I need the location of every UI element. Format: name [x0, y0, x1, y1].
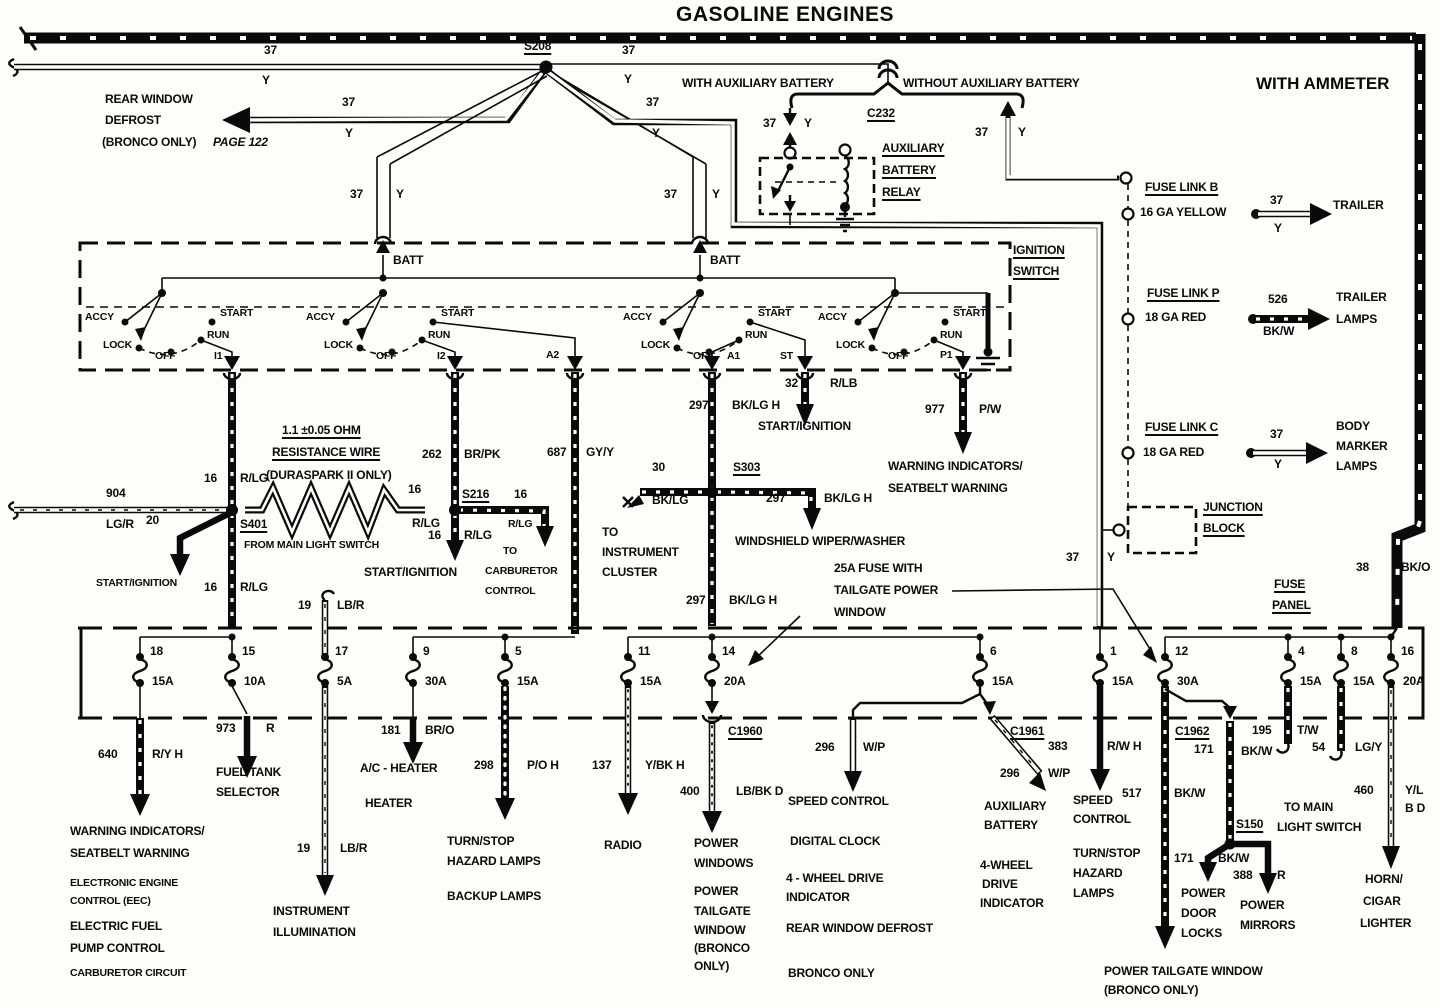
- backup-lamps: BACKUP LAMPS: [447, 890, 541, 903]
- fuse-panel: [78, 628, 1424, 718]
- fuse-panel-2: PANEL: [1272, 599, 1311, 612]
- fuse1-amp: 15A: [1112, 675, 1133, 688]
- to-cluster-3: CLUSTER: [602, 566, 657, 579]
- w1-lock: LOCK: [103, 340, 132, 352]
- w1-start: START: [220, 308, 253, 320]
- resistance-1: 1.1 ±0.05 OHM: [282, 424, 361, 437]
- aux-battery-2: BATTERY: [984, 819, 1038, 832]
- callout-25a-3: WINDOW: [834, 606, 885, 619]
- wire977: 977: [925, 403, 944, 416]
- wireLBR-top: LB/R: [337, 599, 364, 612]
- eec-2: CONTROL (EEC): [70, 896, 151, 908]
- bronco-only-b: BRONCO ONLY: [788, 967, 875, 980]
- term-i1: I1: [214, 351, 222, 363]
- fuse11-amp: 15A: [640, 675, 661, 688]
- fwd-indicator-b2: DRIVE: [982, 878, 1018, 891]
- wire526-flp: 526: [1268, 293, 1287, 306]
- wireRYH: R/Y H: [152, 748, 183, 761]
- wire297-a1: 297: [689, 399, 708, 412]
- w4-accy: ACCY: [818, 312, 847, 324]
- fuse-link-p-gauge: 18 GA RED: [1145, 311, 1206, 324]
- fuse16-num: 16: [1401, 645, 1414, 658]
- w4-off: OFF: [888, 351, 908, 363]
- fuse9-amp: 30A: [425, 675, 446, 688]
- fuse18-amp: 15A: [152, 675, 173, 688]
- fuse-panel-1: FUSE: [1274, 578, 1305, 591]
- wire19-top: 19: [298, 599, 311, 612]
- wireLGY: LG/Y: [1355, 741, 1382, 754]
- wire640: 640: [98, 748, 117, 761]
- wireBKLGH-w: BK/LG H: [824, 492, 872, 505]
- wireRLG-s216r: R/LG: [508, 519, 532, 531]
- wire19-b: 19: [297, 842, 310, 855]
- w1-run: RUN: [207, 330, 229, 342]
- fwd-indicator-b3: INDICATOR: [980, 897, 1044, 910]
- w1-off: OFF: [155, 351, 175, 363]
- wire37-relay-loop: 37: [646, 96, 659, 109]
- ignition-switch-1: IGNITION: [1013, 244, 1065, 257]
- page-title: GASOLINE ENGINES: [676, 3, 894, 27]
- wire37-batt1: 37: [350, 188, 363, 201]
- fuse15-amp: 10A: [244, 675, 265, 688]
- body-marker-lamps-2: MARKER: [1336, 440, 1387, 453]
- wire297-d: 297: [686, 594, 705, 607]
- w2-lock: LOCK: [324, 340, 353, 352]
- wire16-i1: 16: [204, 472, 217, 485]
- w3-run: RUN: [745, 330, 767, 342]
- wire904: 904: [106, 487, 125, 500]
- wireTW: T/W: [1297, 724, 1318, 737]
- with-ammeter-label: WITH AMMETER: [1256, 74, 1389, 93]
- fuse17-amp: 5A: [337, 675, 352, 688]
- body-marker-lamps-3: LAMPS: [1336, 460, 1377, 473]
- fuse17-num: 17: [335, 645, 348, 658]
- batt-2: BATT: [710, 254, 740, 267]
- ac-heater: A/C - HEATER: [360, 762, 437, 775]
- wire37-flb: 37: [1270, 194, 1283, 207]
- w2-accy: ACCY: [306, 312, 335, 324]
- wireY-noaux: Y: [1018, 126, 1026, 139]
- splice-s208: S208: [524, 40, 551, 53]
- fuse-links-chain: [1102, 184, 1332, 553]
- fuse6-num: 6: [990, 645, 996, 658]
- without-aux-battery: WITHOUT AUXILIARY BATTERY: [903, 77, 1080, 90]
- trailer-lamps-2: LAMPS: [1336, 313, 1377, 326]
- callout-25a-1: 25A FUSE WITH: [834, 562, 922, 575]
- horn-cigar-3: LIGHTER: [1360, 917, 1411, 930]
- fuse-symbols: [133, 653, 1398, 687]
- fuse-link-p: FUSE LINK P: [1147, 287, 1219, 300]
- rear-window-defrost-3: (BRONCO ONLY): [102, 136, 196, 149]
- wire298: 298: [474, 759, 493, 772]
- power-tailgate-a3: WINDOW: [694, 924, 745, 937]
- aux-battery-relay-2: BATTERY: [882, 164, 936, 177]
- wireY-flc: Y: [1274, 458, 1282, 471]
- w4-start: START: [953, 308, 986, 320]
- power-door-locks-1: POWER: [1181, 887, 1225, 900]
- wireBD: B D: [1405, 802, 1425, 815]
- wire296-b: 296: [1000, 767, 1019, 780]
- fuse-link-b: FUSE LINK B: [1145, 181, 1218, 194]
- heater: HEATER: [365, 797, 412, 810]
- splice-s150: S150: [1236, 818, 1263, 831]
- wire37-aux: 37: [763, 117, 776, 130]
- to-carb-3: CONTROL: [485, 586, 536, 598]
- electric-fuel-pump-1: ELECTRIC FUEL: [70, 920, 162, 933]
- ignition-switch-2: SWITCH: [1013, 265, 1059, 278]
- wireY-batt2: Y: [712, 188, 720, 201]
- trailer-lamps-1: TRAILER: [1336, 291, 1387, 304]
- warning-seatbelt-b2: SEATBELT WARNING: [70, 847, 190, 860]
- power-tailgate-a1: POWER: [694, 885, 738, 898]
- wireY-main-l: Y: [262, 74, 270, 87]
- to-cluster-1: TO: [602, 526, 618, 539]
- fuel-tank-selector-2: SELECTOR: [216, 786, 280, 799]
- start-ignition-s216: START/IGNITION: [364, 566, 457, 579]
- rear-window-defrost-1: REAR WINDOW: [105, 93, 193, 106]
- to-main-light-switch-1: TO MAIN: [1284, 801, 1333, 814]
- wireGYY: GY/Y: [586, 446, 614, 459]
- power-windows-1: POWER: [694, 837, 738, 850]
- w2-run: RUN: [428, 330, 450, 342]
- fuse9-num: 9: [423, 645, 429, 658]
- wire973: 973: [216, 722, 235, 735]
- fuse12-num: 12: [1175, 645, 1188, 658]
- rear-window-defrost-b: REAR WINDOW DEFROST: [786, 922, 933, 935]
- fwd-indicator-a1: 4 - WHEEL DRIVE: [786, 872, 883, 885]
- start-ignition-st: START/IGNITION: [758, 420, 851, 433]
- horn-cigar-2: CIGAR: [1363, 895, 1401, 908]
- warning-seatbelt-b1: WARNING INDICATORS/: [70, 825, 204, 838]
- speed-control-b2: CONTROL: [1073, 813, 1131, 826]
- aux-battery-relay-3: RELAY: [882, 186, 921, 199]
- electric-fuel-pump-2: PUMP CONTROL: [70, 942, 165, 955]
- w3-start: START: [758, 308, 791, 320]
- fuse6-amp: 15A: [992, 675, 1013, 688]
- wireLBR-b: LB/R: [340, 842, 367, 855]
- with-aux-battery: WITH AUXILIARY BATTERY: [682, 77, 834, 90]
- term-i2: I2: [437, 351, 445, 363]
- term-a1: A1: [727, 351, 740, 363]
- wire171-b: 171: [1174, 852, 1193, 865]
- power-mirrors-2: MIRRORS: [1240, 919, 1295, 932]
- wire54: 54: [1312, 741, 1325, 754]
- wire195: 195: [1252, 724, 1271, 737]
- fuse16-amp: 20A: [1403, 675, 1424, 688]
- wireRLG-s216d: R/LG: [464, 529, 492, 542]
- wire16-res: 16: [408, 483, 421, 496]
- connector-c1962: C1962: [1175, 725, 1209, 738]
- wire687: 687: [547, 446, 566, 459]
- fuse12-amp: 30A: [1177, 675, 1198, 688]
- fuse-link-c-gauge: 18 GA RED: [1143, 446, 1204, 459]
- wireY-fp: Y: [1107, 551, 1115, 564]
- carburetor-circuit: CARBURETOR CIRCUIT: [70, 968, 186, 980]
- junction-block-1: JUNCTION: [1203, 501, 1263, 514]
- wireBKLG: BK/LG: [652, 494, 688, 507]
- to-main-light-switch-2: LIGHT SWITCH: [1277, 821, 1361, 834]
- wireBKLGH-a1: BK/LG H: [732, 399, 780, 412]
- wireRLB: R/LB: [830, 377, 857, 390]
- wire37-main-l: 37: [264, 44, 277, 57]
- page-ref: PAGE 122: [213, 136, 268, 149]
- wireY-relay-loop: Y: [652, 127, 660, 140]
- wireBKW-b: BK/W: [1218, 852, 1249, 865]
- wire37-noaux: 37: [975, 126, 988, 139]
- connector-c1961: C1961: [1010, 725, 1044, 738]
- junction-block-2: BLOCK: [1203, 522, 1245, 535]
- wireWP-b: W/P: [1048, 767, 1070, 780]
- wire296-a: 296: [815, 741, 834, 754]
- fuse14-num: 14: [722, 645, 735, 658]
- fuse-link-b-gauge: 16 GA YELLOW: [1140, 206, 1226, 219]
- term-p1: P1: [940, 350, 952, 362]
- wiring-diagram-page: GASOLINE ENGINES WITH AMMETER 37YS20837Y…: [0, 0, 1440, 1008]
- wire297-w: 297: [766, 492, 785, 505]
- term-a2: A2: [546, 350, 559, 362]
- start-ignition-s401: START/IGNITION: [96, 578, 177, 590]
- wire181: 181: [381, 724, 400, 737]
- resistance-3: (DURASPARK II ONLY): [266, 469, 392, 482]
- w1-accy: ACCY: [85, 312, 114, 324]
- splice-s303: S303: [733, 461, 760, 474]
- turn-stop-hazard-b3: LAMPS: [1073, 887, 1114, 900]
- warning-seatbelt-a2: SEATBELT WARNING: [888, 482, 1008, 495]
- wireLGR: LG/R: [106, 518, 134, 531]
- wireBRPK: BR/PK: [464, 448, 500, 461]
- body-marker-lamps-1: BODY: [1336, 420, 1370, 433]
- wire517: 517: [1122, 787, 1141, 800]
- fuse18-num: 18: [150, 645, 163, 658]
- power-tailgate-a4: (BRONCO: [694, 942, 750, 955]
- wirePOH: P/O H: [527, 759, 559, 772]
- fuse8-num: 8: [1351, 645, 1357, 658]
- wireR-973: R: [266, 722, 274, 735]
- to-carb-2: CARBURETOR: [485, 566, 557, 578]
- to-carb-1: TO: [503, 546, 517, 558]
- wireY-aux: Y: [804, 117, 812, 130]
- fuse1-num: 1: [1110, 645, 1116, 658]
- wireLBBKD: LB/BK D: [736, 785, 783, 798]
- wire32: 32: [785, 377, 798, 390]
- wireBKO: BK/O: [1401, 561, 1430, 574]
- wire37-defrost: 37: [342, 96, 355, 109]
- from-main-light-switch: FROM MAIN LIGHT SWITCH: [244, 540, 379, 552]
- wireBRO: BR/O: [425, 724, 454, 737]
- wire16-s216d: 16: [428, 529, 441, 542]
- batt-1: BATT: [393, 254, 423, 267]
- turn-stop-hazard-a2: HAZARD LAMPS: [447, 855, 541, 868]
- windshield-wiper-washer: WINDSHIELD WIPER/WASHER: [735, 535, 905, 548]
- turn-stop-hazard-a1: TURN/STOP: [447, 835, 514, 848]
- wire262: 262: [422, 448, 441, 461]
- instrument-illum-2: ILLUMINATION: [273, 926, 356, 939]
- w2-start: START: [441, 308, 474, 320]
- wireRLG-i1: R/LG: [240, 472, 268, 485]
- w4-lock: LOCK: [836, 340, 865, 352]
- wireY-defrost: Y: [345, 127, 353, 140]
- wire16-s216r: 16: [514, 488, 527, 501]
- wire37-main-r: 37: [622, 44, 635, 57]
- w3-accy: ACCY: [623, 312, 652, 324]
- w3-off: OFF: [693, 351, 713, 363]
- fuse5-amp: 15A: [517, 675, 538, 688]
- fwd-indicator-a2: INDICATOR: [786, 891, 850, 904]
- power-door-locks-3: LOCKS: [1181, 927, 1222, 940]
- wire171-a: 171: [1194, 743, 1213, 756]
- fuse-link-c: FUSE LINK C: [1145, 421, 1218, 434]
- power-door-locks-2: DOOR: [1181, 907, 1216, 920]
- wire30: 30: [652, 461, 665, 474]
- wirePW: P/W: [979, 403, 1001, 416]
- instrument-illum-1: INSTRUMENT: [273, 905, 350, 918]
- wireY-flb: Y: [1274, 222, 1282, 235]
- warning-seatbelt-a1: WARNING INDICATORS/: [888, 460, 1022, 473]
- speed-control-b1: SPEED: [1073, 794, 1113, 807]
- power-tailgate-b1: POWER TAILGATE WINDOW: [1104, 965, 1263, 978]
- power-windows-2: WINDOWS: [694, 857, 753, 870]
- resistance-2: RESISTANCE WIRE: [272, 446, 380, 459]
- wireR-388: R: [1277, 869, 1285, 882]
- wireYL: Y/L: [1405, 784, 1423, 797]
- wireBKW-flp: BK/W: [1263, 325, 1294, 338]
- to-cluster-2: INSTRUMENT: [602, 546, 679, 559]
- power-tailgate-a5: ONLY): [694, 960, 729, 973]
- wireYBKH: Y/BK H: [645, 759, 684, 772]
- wire460: 460: [1354, 784, 1373, 797]
- fwd-indicator-b1: 4-WHEEL: [980, 859, 1033, 872]
- w2-off: OFF: [376, 351, 396, 363]
- w4-run: RUN: [940, 330, 962, 342]
- wireRWH: R/W H: [1107, 740, 1141, 753]
- w3-lock: LOCK: [641, 340, 670, 352]
- wireRLG-s401d: R/LG: [240, 581, 268, 594]
- wire16-s401d: 16: [204, 581, 217, 594]
- wireBKW-a: BK/W: [1241, 745, 1272, 758]
- wireWP-a: W/P: [863, 741, 885, 754]
- wire137: 137: [592, 759, 611, 772]
- fuse4-num: 4: [1298, 645, 1304, 658]
- wire37-fp: 37: [1066, 551, 1079, 564]
- wireBKLGH-d: BK/LG H: [729, 594, 777, 607]
- wire38: 38: [1356, 561, 1369, 574]
- fuse11-num: 11: [638, 645, 650, 658]
- wire37-batt2: 37: [664, 188, 677, 201]
- speed-control-a: SPEED CONTROL: [788, 795, 889, 808]
- radio: RADIO: [604, 839, 642, 852]
- splice-s401: S401: [240, 518, 267, 531]
- trailer: TRAILER: [1333, 199, 1384, 212]
- digital-clock: DIGITAL CLOCK: [790, 835, 880, 848]
- power-mirrors-1: POWER: [1240, 899, 1284, 912]
- wireBKW-517: BK/W: [1174, 787, 1205, 800]
- power-tailgate-a2: TAILGATE: [694, 905, 751, 918]
- fuse5-num: 5: [515, 645, 521, 658]
- power-tailgate-b2: (BRONCO ONLY): [1104, 984, 1198, 997]
- fuel-tank-selector-1: FUEL TANK: [216, 766, 281, 779]
- fuse15-num: 15: [242, 645, 255, 658]
- wireY-main-r: Y: [624, 73, 632, 86]
- turn-stop-hazard-b1: TURN/STOP: [1073, 847, 1140, 860]
- callout-25a-2: TAILGATE POWER: [834, 584, 938, 597]
- wire37-flc: 37: [1270, 428, 1283, 441]
- wire383: 383: [1048, 740, 1067, 753]
- wire388: 388: [1233, 869, 1252, 882]
- wire20: 20: [146, 514, 159, 527]
- term-st: ST: [780, 351, 793, 363]
- fuse8-amp: 15A: [1353, 675, 1374, 688]
- wireY-batt1: Y: [396, 188, 404, 201]
- splice-s216: S216: [462, 488, 489, 501]
- aux-battery-relay-1: AUXILIARY: [882, 142, 944, 155]
- horn-cigar-1: HORN/: [1365, 873, 1403, 886]
- connector-c1960: C1960: [728, 725, 762, 738]
- wire400: 400: [680, 785, 699, 798]
- aux-battery-1: AUXILIARY: [984, 800, 1046, 813]
- eec-1: ELECTRONIC ENGINE: [70, 878, 178, 890]
- fuse4-amp: 15A: [1300, 675, 1321, 688]
- rear-window-defrost-2: DEFROST: [105, 114, 161, 127]
- fuse14-amp: 20A: [724, 675, 745, 688]
- connector-c232: C232: [867, 107, 895, 120]
- turn-stop-hazard-b2: HAZARD: [1073, 867, 1122, 880]
